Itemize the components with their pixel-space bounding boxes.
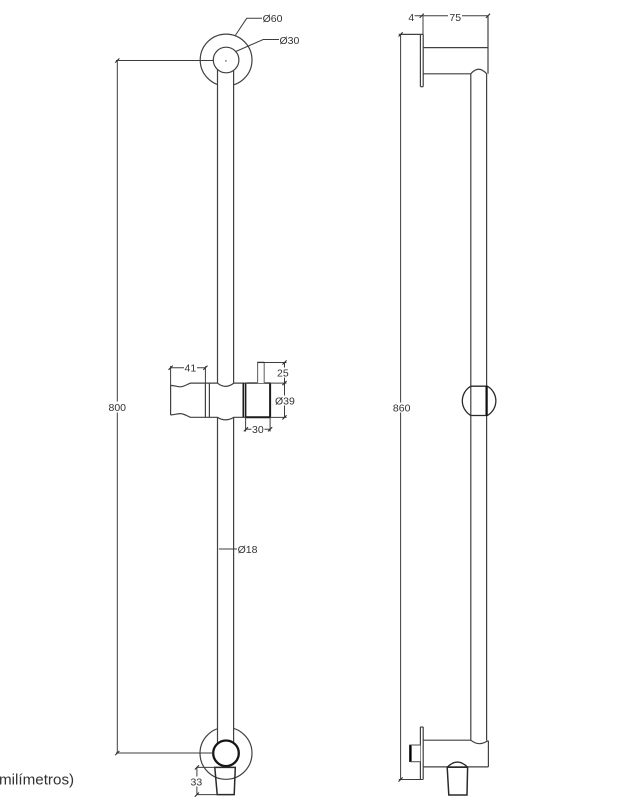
svg-text:Ø39: Ø39	[275, 396, 295, 408]
svg-text:milímetros): milímetros)	[0, 772, 74, 789]
svg-text:800: 800	[109, 402, 127, 414]
svg-text:4: 4	[408, 12, 414, 24]
svg-text:Ø60: Ø60	[263, 13, 283, 25]
svg-text:33: 33	[191, 776, 203, 788]
svg-text:860: 860	[393, 402, 411, 414]
svg-text:25: 25	[277, 367, 289, 379]
svg-text:30: 30	[252, 424, 264, 436]
svg-text:Ø18: Ø18	[238, 544, 258, 556]
svg-text:75: 75	[449, 12, 461, 24]
svg-text:41: 41	[185, 363, 197, 375]
svg-text:Ø30: Ø30	[280, 35, 300, 47]
